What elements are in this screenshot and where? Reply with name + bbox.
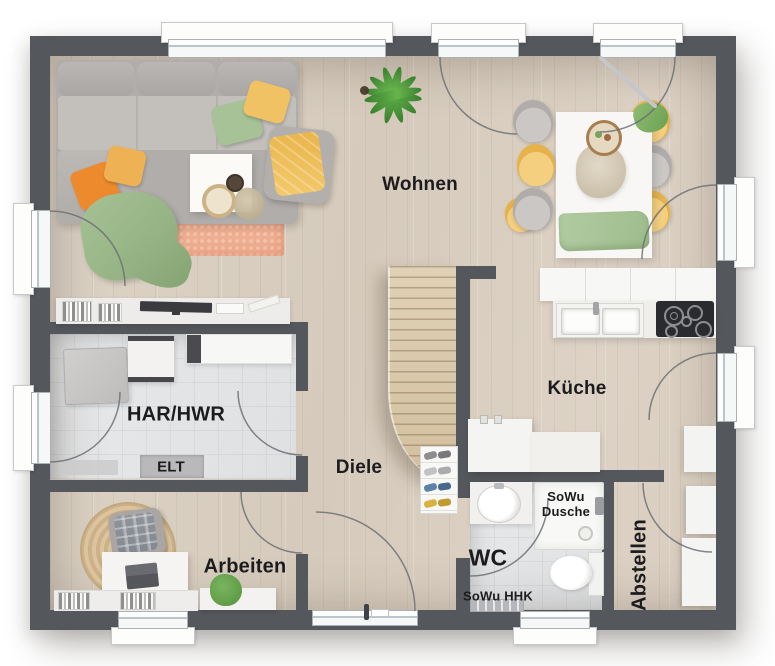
wall-abstellen-top [614, 470, 664, 482]
wall-har-right-upper [296, 334, 308, 391]
kitchen-wall-cabinets [540, 268, 716, 301]
room-label-sowu-hhk: SoWu HHK [463, 589, 533, 604]
burner-inner [670, 312, 678, 320]
room-label-wc: WC [469, 545, 508, 572]
fridge-handle [494, 415, 502, 424]
window-living-left [31, 210, 51, 288]
palm-pot [360, 86, 369, 95]
kitchen-base-cabinet [532, 432, 600, 472]
utility-shelf [186, 334, 292, 364]
kitchen-sink-unit [556, 303, 644, 338]
window-sill [513, 627, 597, 645]
living-armchair [262, 125, 335, 205]
cabinet-divider [675, 268, 676, 301]
utility-sink-unit [128, 336, 174, 382]
wall-har-right-lower [296, 456, 308, 480]
floor-mat [60, 460, 118, 475]
desk-plant [210, 574, 242, 606]
sink-basin [602, 308, 640, 335]
shelf-books [120, 592, 156, 610]
cooktop [656, 301, 714, 337]
window-har-left [31, 392, 51, 464]
storage-shelf [686, 486, 716, 534]
burner [695, 321, 712, 338]
plaid-blanket [113, 512, 158, 555]
fruit-bowl [586, 120, 622, 156]
shelf-books [58, 592, 90, 610]
window-arbeiten-bottom [118, 611, 188, 629]
room-label-diele: Diele [336, 457, 382, 479]
washing-machine [63, 347, 129, 405]
storage-shelf [682, 538, 716, 606]
terrace-door-left [438, 39, 519, 58]
room-label-kueche: Küche [547, 378, 606, 400]
burner [681, 316, 692, 327]
entrance-door-handle [364, 604, 369, 620]
sideboard-books [98, 303, 122, 322]
floor-plan: Wohnen Küche HAR/HWR ELT Diele Arbeiten … [0, 0, 775, 666]
room-label-elt: ELT [157, 459, 185, 476]
window-sill [111, 627, 195, 645]
entrance-door-plate [371, 609, 389, 617]
room-label-abstellen: Abstellen [629, 519, 652, 611]
shower-fixture [595, 497, 604, 515]
terrace-door-right [600, 39, 676, 58]
fridge [468, 419, 532, 472]
wc-faucet [494, 483, 504, 489]
unit-trim [128, 336, 174, 341]
unit-trim [128, 377, 174, 382]
faucet [593, 302, 599, 315]
window-wc-bottom [520, 611, 590, 629]
cabinet-divider [585, 268, 586, 301]
table-runner-green [558, 210, 649, 251]
room-label-har-hwr: HAR/HWR [127, 404, 225, 427]
fruit [604, 134, 611, 141]
potted-palm-plant [362, 64, 424, 126]
room-label-arbeiten: Arbeiten [204, 556, 287, 579]
pillow-amber [103, 144, 148, 187]
wall-har-arbeiten [50, 480, 308, 492]
tv-stand [172, 311, 180, 315]
window-living-top [168, 39, 386, 58]
sofa-back-cushion [58, 62, 134, 96]
laptop [125, 562, 159, 589]
sideboard-books [62, 301, 92, 322]
shower-drain [578, 526, 593, 541]
sofa-back-cushion [137, 62, 215, 96]
wall-stairs-return-stub [456, 266, 496, 279]
toilet-bowl [550, 556, 592, 590]
window-kitchen-right [717, 353, 737, 422]
window-sill [734, 177, 755, 268]
wall-arbeiten-diele [296, 554, 308, 610]
fruit [595, 131, 602, 138]
window-sill [734, 346, 755, 429]
cabinet-divider [630, 268, 631, 301]
room-label-sowu-dusche: SoWu Dusche [537, 490, 595, 520]
fridge-handle [480, 415, 488, 424]
yellow-blanket [268, 131, 326, 197]
burner [665, 325, 678, 338]
wc-basin [477, 485, 521, 523]
window-dining-right [717, 184, 737, 261]
kitchen-cabinet-right [684, 426, 716, 472]
shelf-side-panel [187, 335, 201, 363]
decor-stack [216, 303, 244, 314]
room-label-wohnen: Wohnen [382, 174, 458, 196]
